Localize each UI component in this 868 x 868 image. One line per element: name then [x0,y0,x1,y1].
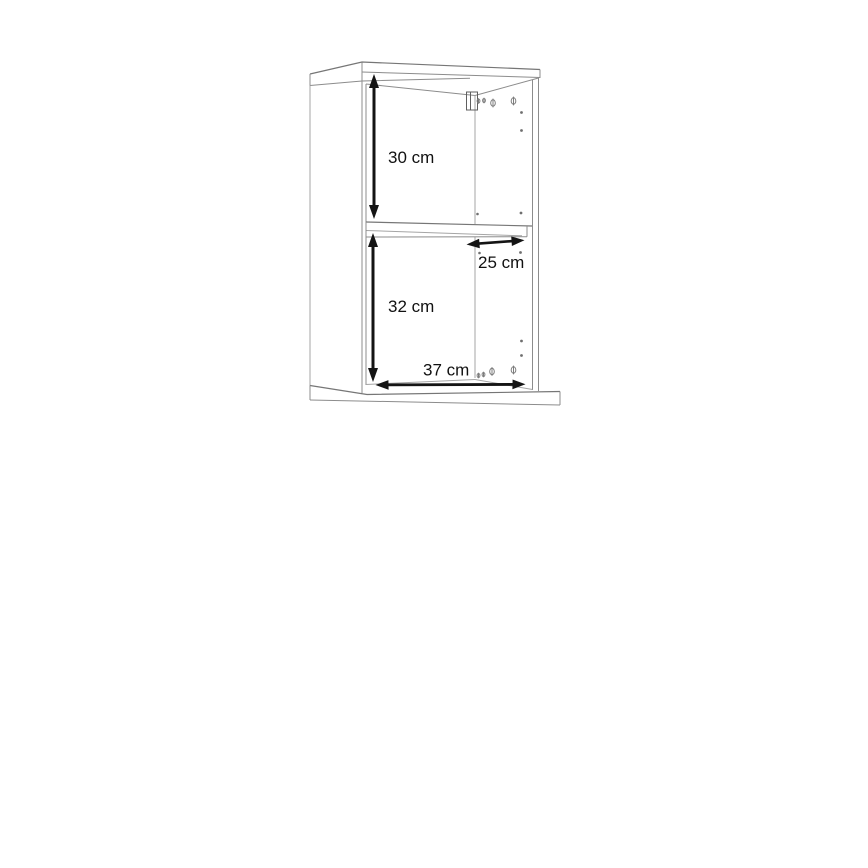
arrowhead-left-icon [376,380,389,390]
left-side-panel [310,72,366,400]
arrowhead-down-icon [368,368,378,382]
arrowhead-left-icon [467,239,480,249]
mounting-holes-bottom [477,366,516,379]
arrowhead-up-icon [368,233,378,247]
bottom-panel [310,386,560,406]
top-panel [310,62,540,86]
dimension-interior-width: 37 cm [376,361,526,390]
diagram-canvas: 30 cm 25 cm 32 cm 37 cm [0,0,868,868]
arrowhead-down-icon [369,205,379,219]
arrowhead-right-icon [511,236,524,246]
dimension-label-25cm: 25 cm [478,253,524,272]
mounting-holes-top [477,97,516,108]
dimension-label-32cm: 32 cm [388,297,434,316]
dimension-label-30cm: 30 cm [388,148,434,167]
dimension-label-37cm: 37 cm [423,361,469,380]
right-side-panel [533,78,539,391]
dimension-upper-height: 30 cm [369,74,434,219]
shelf [366,222,532,237]
cabinet-dimension-drawing: 30 cm 25 cm 32 cm 37 cm [0,0,868,868]
